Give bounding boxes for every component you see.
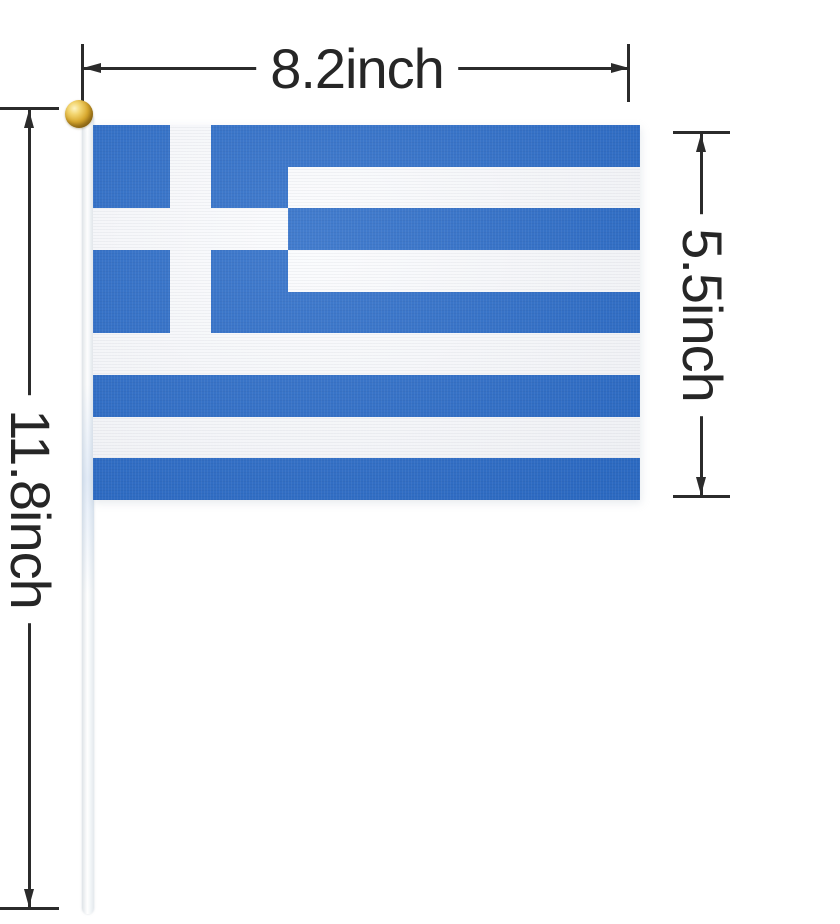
- pole-length-label: 11.8inch: [0, 395, 61, 623]
- arrow-down-icon: [24, 889, 34, 907]
- flag-height-label: 5.5inch: [671, 214, 733, 416]
- flag-canton: [93, 125, 288, 333]
- flag-stripe: [93, 458, 640, 500]
- arrow-right-icon: [611, 63, 629, 73]
- arrow-down-icon: [696, 477, 706, 495]
- greece-flag: [93, 125, 640, 500]
- pole-length-bottom-tick: [0, 907, 59, 910]
- width-label: 8.2inch: [256, 38, 458, 100]
- flag-stripe: [93, 375, 640, 417]
- arrow-left-icon: [83, 63, 101, 73]
- product-photo: 8.2inch 11.8inch 5.5inch: [0, 0, 840, 924]
- width-dimension-right-tick: [627, 44, 630, 102]
- arrow-up-icon: [24, 110, 34, 128]
- flag-stripe: [93, 417, 640, 459]
- flag-stripe: [93, 333, 640, 375]
- width-dimension-left-tick: [81, 44, 84, 106]
- cross-vertical-bar: [170, 125, 212, 333]
- gold-ball-finial: [65, 100, 93, 128]
- arrow-up-icon: [696, 134, 706, 152]
